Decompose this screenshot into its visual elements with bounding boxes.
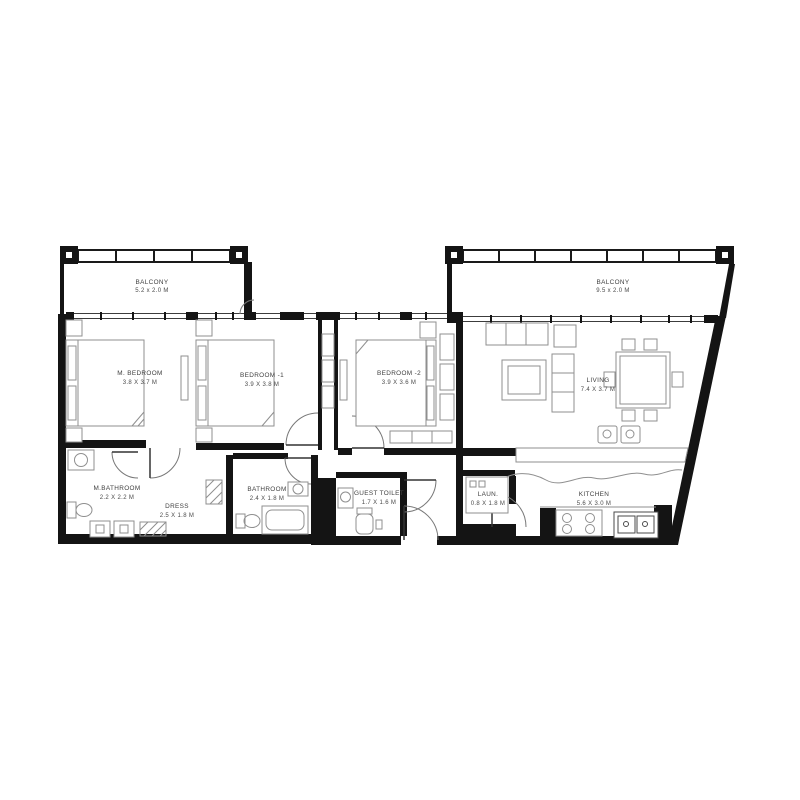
svg-text:3.8 X 3.7 M: 3.8 X 3.7 M bbox=[123, 380, 158, 386]
label-bathroom: BATHROOM 2.4 X 1.8 M bbox=[247, 486, 286, 502]
svg-text:9.5 x 2.0 M: 9.5 x 2.0 M bbox=[596, 288, 630, 294]
svg-text:0.8 X 1.8 M: 0.8 X 1.8 M bbox=[471, 501, 506, 507]
svg-text:M.BATHROOM: M.BATHROOM bbox=[93, 485, 140, 492]
floor-plan-page: BALCONY 5.2 x 2.0 M BALCONY 9.5 x 2.0 M … bbox=[0, 0, 800, 800]
svg-text:GUEST TOILET: GUEST TOILET bbox=[354, 490, 404, 497]
svg-text:LAUN.: LAUN. bbox=[478, 491, 499, 498]
svg-text:5.6 X 3.0 M: 5.6 X 3.0 M bbox=[577, 501, 612, 507]
svg-text:3.9 X 3.8 M: 3.9 X 3.8 M bbox=[245, 382, 280, 388]
label-dress: DRESS 2.5 X 1.8 M bbox=[160, 503, 195, 519]
label-balcony-right: BALCONY 9.5 x 2.0 M bbox=[596, 279, 630, 294]
svg-text:BEDROOM -2: BEDROOM -2 bbox=[377, 370, 421, 377]
svg-text:2.4 X 1.8 M: 2.4 X 1.8 M bbox=[250, 496, 285, 502]
svg-text:BATHROOM: BATHROOM bbox=[247, 486, 286, 493]
svg-text:3.9 X 3.6 M: 3.9 X 3.6 M bbox=[382, 380, 417, 386]
svg-text:LIVING: LIVING bbox=[586, 377, 609, 384]
window-bands bbox=[66, 312, 718, 323]
svg-text:DRESS: DRESS bbox=[165, 503, 189, 510]
svg-text:M. BEDROOM: M. BEDROOM bbox=[117, 370, 162, 377]
label-master-bathroom: M.BATHROOM 2.2 X 2.2 M bbox=[93, 485, 140, 501]
svg-text:KITCHEN: KITCHEN bbox=[579, 491, 610, 498]
label-guest-toilet: GUEST TOILET 1.7 X 1.6 M bbox=[354, 490, 404, 506]
svg-text:1.7 X 1.6 M: 1.7 X 1.6 M bbox=[362, 500, 397, 506]
svg-text:2.5 X 1.8 M: 2.5 X 1.8 M bbox=[160, 513, 195, 519]
label-kitchen: KITCHEN 5.6 X 3.0 M bbox=[577, 491, 612, 507]
svg-text:5.2 x 2.0 M: 5.2 x 2.0 M bbox=[135, 288, 169, 294]
svg-text:BEDROOM -1: BEDROOM -1 bbox=[240, 372, 284, 379]
furniture-dining bbox=[604, 339, 683, 421]
svg-text:7.4 X 3.7 M: 7.4 X 3.7 M bbox=[581, 387, 616, 393]
svg-text:2.2 X 2.2 M: 2.2 X 2.2 M bbox=[100, 495, 135, 501]
floor-plan-canvas: BALCONY 5.2 x 2.0 M BALCONY 9.5 x 2.0 M … bbox=[0, 0, 800, 800]
svg-text:BALCONY: BALCONY bbox=[136, 279, 169, 286]
furniture-bedroom-1 bbox=[196, 320, 334, 442]
label-balcony-left: BALCONY 5.2 x 2.0 M bbox=[135, 279, 169, 294]
furniture-master-bathroom bbox=[67, 450, 134, 537]
svg-text:BALCONY: BALCONY bbox=[597, 279, 630, 286]
